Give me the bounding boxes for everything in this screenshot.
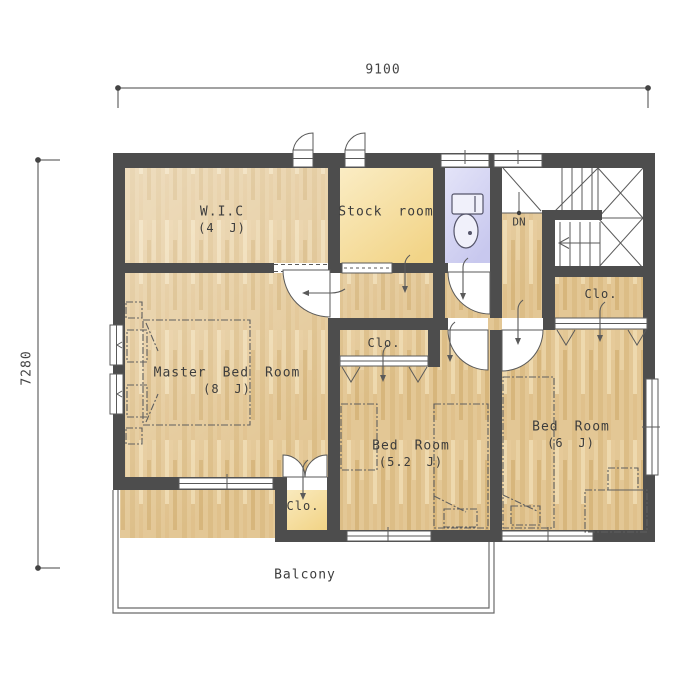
room-size-master-bedroom: (8 J) <box>203 382 251 396</box>
wall-hall-closet-top <box>543 266 655 277</box>
room-label-hall-closet: Clo. <box>585 287 618 301</box>
opening-master-closet <box>287 477 327 490</box>
window-master-left-1 <box>110 325 123 365</box>
wall-toilet-hall <box>490 163 502 318</box>
wall-exterior-top <box>113 153 655 168</box>
sliding-door-stock <box>342 263 392 273</box>
dimension-left-label: 7280 <box>20 350 35 385</box>
floor-plan-drawing <box>0 0 680 680</box>
stair-dn-label: DN <box>512 216 525 229</box>
window-toilet-top <box>441 150 489 167</box>
room-label-mid-closet: Clo. <box>368 336 401 350</box>
room-label-master-bedroom: Master Bed Room <box>154 366 301 381</box>
casement-window-stock <box>345 133 365 167</box>
opening-bedroom6-door <box>502 318 543 330</box>
wall-exterior-left <box>113 153 125 490</box>
room-size-bedroom6: (6 J) <box>547 436 595 450</box>
floor-plan: 9100 7280 W.I.C (4 J) Stock room DN Clo.… <box>0 0 680 680</box>
dimension-top-label: 9100 <box>365 63 400 78</box>
casement-window-wic <box>293 133 313 167</box>
window-stair-top <box>494 150 542 167</box>
wall-bedroom-divider <box>490 330 502 542</box>
dimension-left <box>36 158 60 571</box>
room-size-bedroom52: (5.2 J) <box>379 455 443 469</box>
room-label-bedroom6: Bed Room <box>532 420 610 435</box>
dimension-top <box>116 86 651 108</box>
room-size-wic: (4 J) <box>198 221 246 235</box>
wall-exterior-right <box>643 153 655 542</box>
room-label-bedroom52: Bed Room <box>372 439 450 454</box>
room-label-wic: W.I.C <box>200 205 244 220</box>
wall-mid-closet-right <box>428 318 440 367</box>
window-master-left-2 <box>110 374 123 414</box>
wall-stair-inner-h <box>542 210 602 220</box>
room-label-balcony: Balcony <box>274 568 336 583</box>
room-label-stock-room: Stock room <box>338 205 433 220</box>
room-label-master-closet: Clo. <box>287 499 320 513</box>
opening-bedroom52-door <box>448 318 488 330</box>
wall-stock-toilet <box>433 163 445 318</box>
